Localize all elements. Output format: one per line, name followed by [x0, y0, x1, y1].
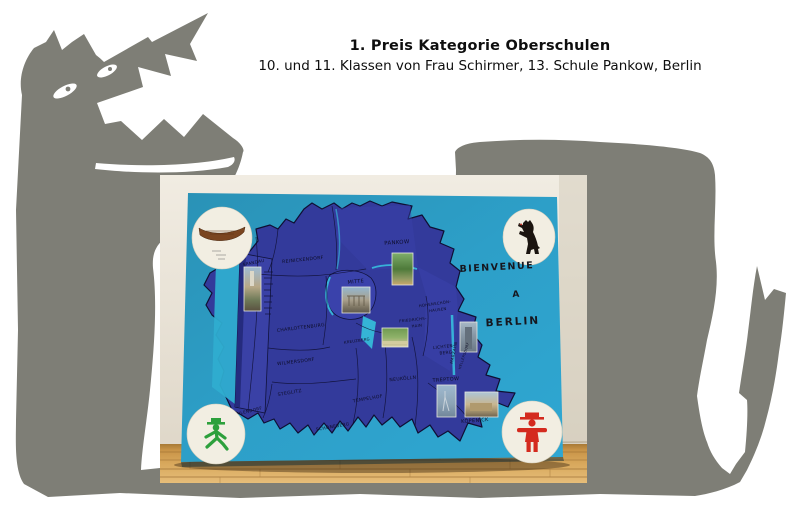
page: 1. Preis Kategorie Oberschulen 10. und 1…	[0, 0, 799, 507]
green-ampelmann-badge	[187, 404, 245, 464]
artwork-photo-svg: SPANDAU REINICKENDORF PANKOW MITTE CHARL…	[160, 175, 587, 483]
page-title: 1. Preis Kategorie Oberschulen	[150, 38, 799, 54]
boat-badge	[192, 207, 252, 269]
mini-photo-treptow-molecule-men	[437, 385, 456, 417]
red-ampelmann-badge	[502, 401, 562, 463]
mini-photo-pankow-park	[392, 253, 413, 285]
spandau-flap	[212, 253, 273, 413]
mini-photo-kreuzberg-park	[382, 328, 408, 347]
bear-badge	[503, 209, 555, 265]
caption-block: 1. Preis Kategorie Oberschulen 10. und 1…	[150, 38, 799, 74]
mini-photo-brandenburg-gate	[342, 287, 370, 313]
welcome-line-2: A	[512, 290, 520, 300]
mini-photo-koepenick-palace	[465, 392, 498, 417]
mini-photo-spandau-church	[244, 267, 261, 311]
page-subtitle: 10. und 11. Klassen von Frau Schirmer, 1…	[150, 58, 799, 74]
artwork-photo: SPANDAU REINICKENDORF PANKOW MITTE CHARL…	[160, 175, 587, 483]
